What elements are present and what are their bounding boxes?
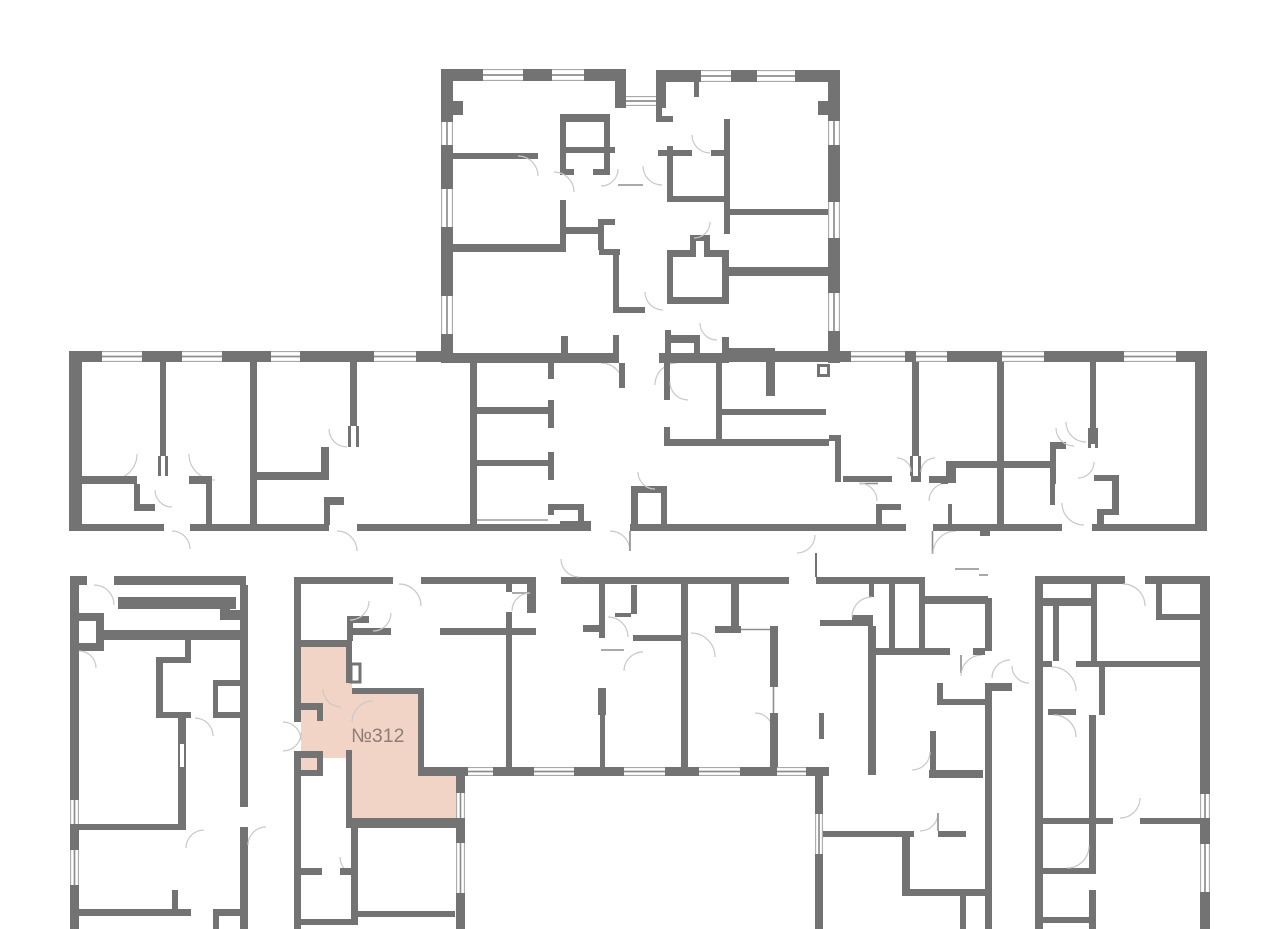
svg-text:№312: №312 (351, 725, 404, 747)
